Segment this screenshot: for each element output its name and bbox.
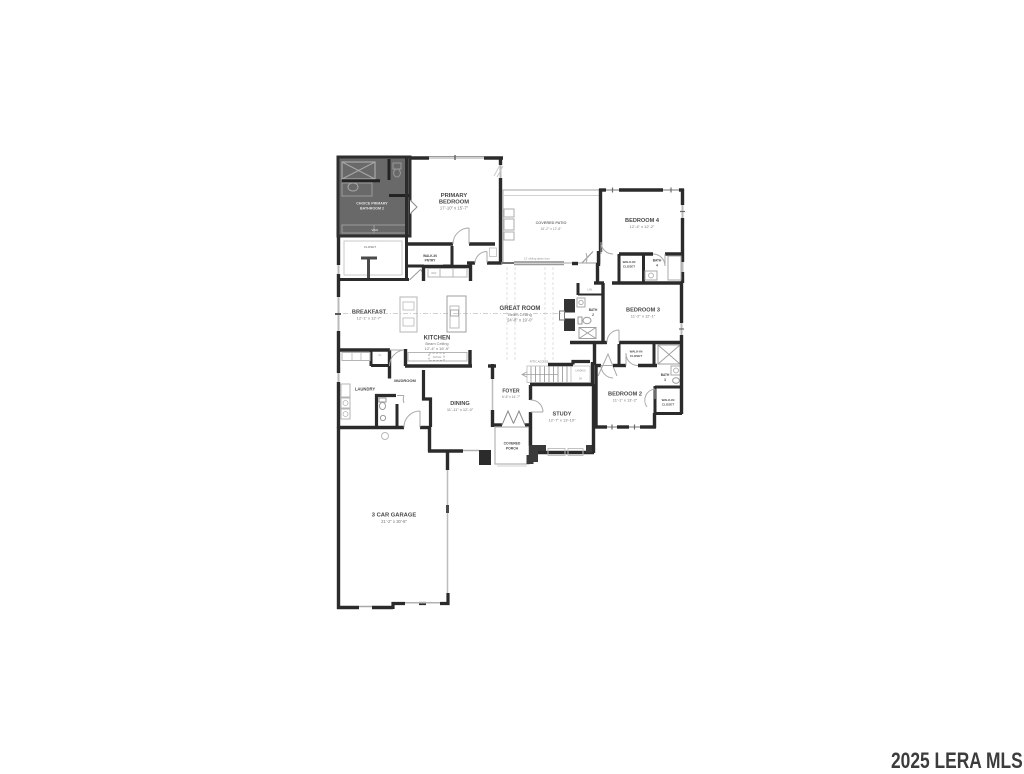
svg-text:12’-4” x 16’-9”: 12’-4” x 16’-9” — [425, 346, 450, 351]
svg-text:VAN.: VAN. — [372, 228, 379, 232]
svg-text:24’-8” x 19’-0”: 24’-8” x 19’-0” — [507, 318, 533, 323]
svg-text:12’-4” x 12’-2”: 12’-4” x 12’-2” — [630, 224, 655, 229]
svg-text:ATTIC ACCESS: ATTIC ACCESS — [530, 360, 549, 364]
svg-text:COVERED PATIO: COVERED PATIO — [536, 221, 567, 225]
svg-text:BATH: BATH — [661, 373, 670, 377]
svg-text:3 CAR GARAGE: 3 CAR GARAGE — [372, 513, 417, 519]
svg-text:11’-1” x 13’-2”: 11’-1” x 13’-2” — [613, 398, 638, 403]
svg-text:BATHROOM 2: BATHROOM 2 — [360, 207, 384, 211]
svg-text:2: 2 — [592, 313, 594, 317]
svg-text:21’-2” x 30’-8”: 21’-2” x 30’-8” — [381, 519, 407, 524]
svg-text:6’-6” x 14’-7”: 6’-6” x 14’-7” — [502, 395, 520, 399]
svg-text:PRIMARY: PRIMARY — [441, 193, 468, 199]
svg-text:LANDING: LANDING — [575, 370, 585, 373]
svg-text:12’-1” x 12’-7”: 12’-1” x 12’-7” — [357, 316, 382, 321]
svg-text:CLOSET: CLOSET — [623, 265, 635, 269]
svg-text:11’-11” x 12’-0”: 11’-11” x 12’-0” — [447, 407, 474, 412]
svg-text:REF: REF — [431, 271, 437, 275]
svg-text:Beam Ceiling: Beam Ceiling — [508, 312, 532, 317]
svg-text:CLOSET: CLOSET — [662, 403, 674, 407]
svg-text:BATH: BATH — [653, 259, 662, 263]
svg-text:PNTRY: PNTRY — [425, 259, 437, 263]
svg-text:CL: CL — [378, 353, 382, 357]
svg-text:BATH: BATH — [589, 308, 598, 312]
svg-text:WALK-IN: WALK-IN — [662, 398, 675, 402]
svg-text:LIN.: LIN. — [587, 288, 592, 292]
svg-text:WALK-IN: WALK-IN — [423, 254, 437, 258]
svg-text:CLOSET: CLOSET — [364, 245, 376, 249]
svg-text:16’-2” x 12’-8”: 16’-2” x 12’-8” — [541, 227, 562, 231]
svg-text:CLOSET: CLOSET — [630, 354, 642, 358]
svg-text:FOYER: FOYER — [502, 389, 520, 395]
svg-text:CHOICE PRIMARY: CHOICE PRIMARY — [356, 202, 388, 206]
svg-text:17’-10” x 15’-7”: 17’-10” x 15’-7” — [440, 206, 469, 211]
svg-text:4: 4 — [656, 263, 658, 267]
svg-text:LAUNDRY: LAUNDRY — [355, 387, 376, 392]
svg-text:DN: DN — [579, 379, 583, 381]
svg-text:WALK-IN: WALK-IN — [630, 350, 643, 354]
svg-text:12’-7” x 13’-10”: 12’-7” x 13’-10” — [549, 418, 577, 423]
svg-text:12’ sliding glass door: 12’ sliding glass door — [524, 257, 550, 261]
svg-text:MUDROOM: MUDROOM — [394, 378, 416, 383]
svg-text:PORCH: PORCH — [506, 447, 519, 451]
svg-text:COVERED: COVERED — [504, 442, 521, 446]
svg-text:3: 3 — [664, 378, 666, 382]
svg-text:RANGE: RANGE — [433, 356, 442, 359]
svg-text:11’-2” x 12’-1”: 11’-2” x 12’-1” — [631, 314, 656, 319]
svg-text:WALK-IN: WALK-IN — [623, 260, 636, 264]
